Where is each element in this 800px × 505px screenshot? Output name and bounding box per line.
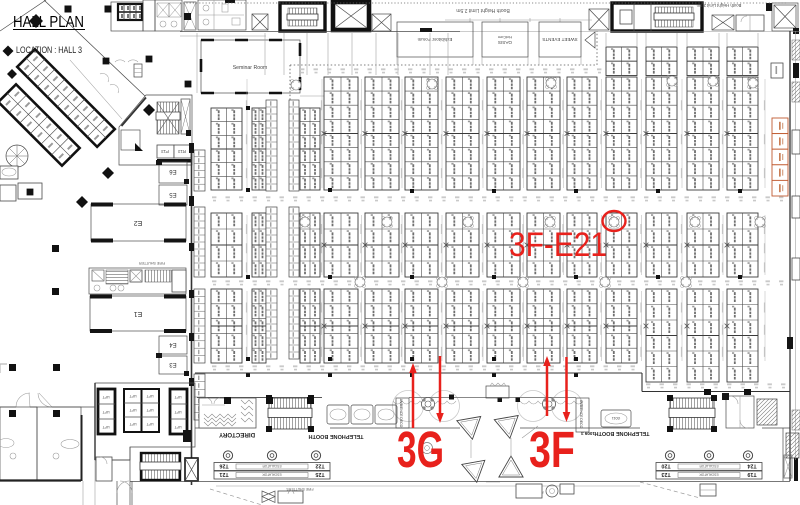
svg-text:HotCorn: HotCorn bbox=[498, 35, 512, 39]
svg-text:LIFT: LIFT bbox=[147, 394, 154, 398]
svg-text:3F-E21: 3F-E21 bbox=[509, 226, 607, 264]
svg-text:LIFT: LIFT bbox=[103, 425, 110, 429]
svg-text:DIRECTORY: DIRECTORY bbox=[218, 431, 255, 438]
svg-text:E1: E1 bbox=[134, 310, 143, 317]
svg-text:R13: R13 bbox=[177, 149, 185, 154]
svg-text:Booth Height Limit 2.5m: Booth Height Limit 2.5m bbox=[696, 3, 741, 8]
svg-text:ESCALATOR: ESCALATOR bbox=[262, 473, 282, 477]
svg-text:SWEET EVENTS: SWEET EVENTS bbox=[542, 37, 577, 42]
svg-text:T20: T20 bbox=[661, 463, 670, 469]
svg-text:E3: E3 bbox=[169, 361, 177, 367]
svg-text:LIFT: LIFT bbox=[103, 410, 110, 414]
svg-text:T22: T22 bbox=[315, 463, 324, 469]
svg-text:1009 3: 1009 3 bbox=[581, 431, 595, 436]
svg-text:3F: 3F bbox=[529, 421, 575, 478]
svg-text:Seminar Room: Seminar Room bbox=[233, 65, 268, 71]
svg-text:T23: T23 bbox=[661, 471, 670, 477]
svg-text:ESCALATOR: ESCALATOR bbox=[262, 464, 282, 468]
svg-text:LOCATION : HALL 3: LOCATION : HALL 3 bbox=[16, 45, 82, 56]
svg-text:FIRE SHUTTERS: FIRE SHUTTERS bbox=[286, 487, 314, 491]
svg-text:HALL PLAN: HALL PLAN bbox=[13, 14, 84, 31]
svg-text:T19: T19 bbox=[747, 471, 756, 477]
svg-text:T26: T26 bbox=[219, 463, 228, 469]
svg-text:G011: G011 bbox=[612, 416, 621, 420]
svg-text:T25: T25 bbox=[315, 471, 324, 477]
svg-text:E2: E2 bbox=[134, 219, 143, 226]
svg-text:FIRE SHUTTER: FIRE SHUTTER bbox=[139, 261, 166, 265]
svg-text:P13: P13 bbox=[161, 149, 169, 154]
svg-text:LIFT: LIFT bbox=[130, 394, 137, 398]
svg-text:E5: E5 bbox=[169, 191, 177, 197]
svg-text:LIFT: LIFT bbox=[147, 422, 154, 426]
svg-text:LIFT: LIFT bbox=[130, 422, 137, 426]
svg-text:Booth Height Limit 2.5m: Booth Height Limit 2.5m bbox=[456, 7, 509, 13]
svg-text:LIFT: LIFT bbox=[175, 395, 182, 399]
svg-text:LIFT: LIFT bbox=[175, 410, 182, 414]
svg-text:LIFT: LIFT bbox=[147, 408, 154, 412]
svg-text:3G: 3G bbox=[397, 421, 444, 478]
svg-text:T24: T24 bbox=[747, 463, 756, 469]
svg-text:ESCALATOR: ESCALATOR bbox=[699, 473, 719, 477]
svg-text:E6: E6 bbox=[169, 168, 177, 174]
svg-text:LIFT: LIFT bbox=[103, 395, 110, 399]
svg-text:ESCALATOR: ESCALATOR bbox=[699, 464, 719, 468]
svg-text:TELEPHONE BOOTH: TELEPHONE BOOTH bbox=[594, 430, 649, 436]
svg-text:Exhibitors’ Forum: Exhibitors’ Forum bbox=[417, 37, 452, 42]
svg-text:E4: E4 bbox=[169, 341, 177, 347]
svg-text:LIFT: LIFT bbox=[130, 408, 137, 412]
svg-text:T21: T21 bbox=[219, 471, 228, 477]
svg-text:LIFT: LIFT bbox=[175, 425, 182, 429]
svg-text:AMBIENCE DECO: AMBIENCE DECO bbox=[579, 400, 583, 429]
svg-text:TELEPHONE BOOTH: TELEPHONE BOOTH bbox=[308, 433, 363, 439]
svg-text:OASIS: OASIS bbox=[498, 40, 512, 45]
